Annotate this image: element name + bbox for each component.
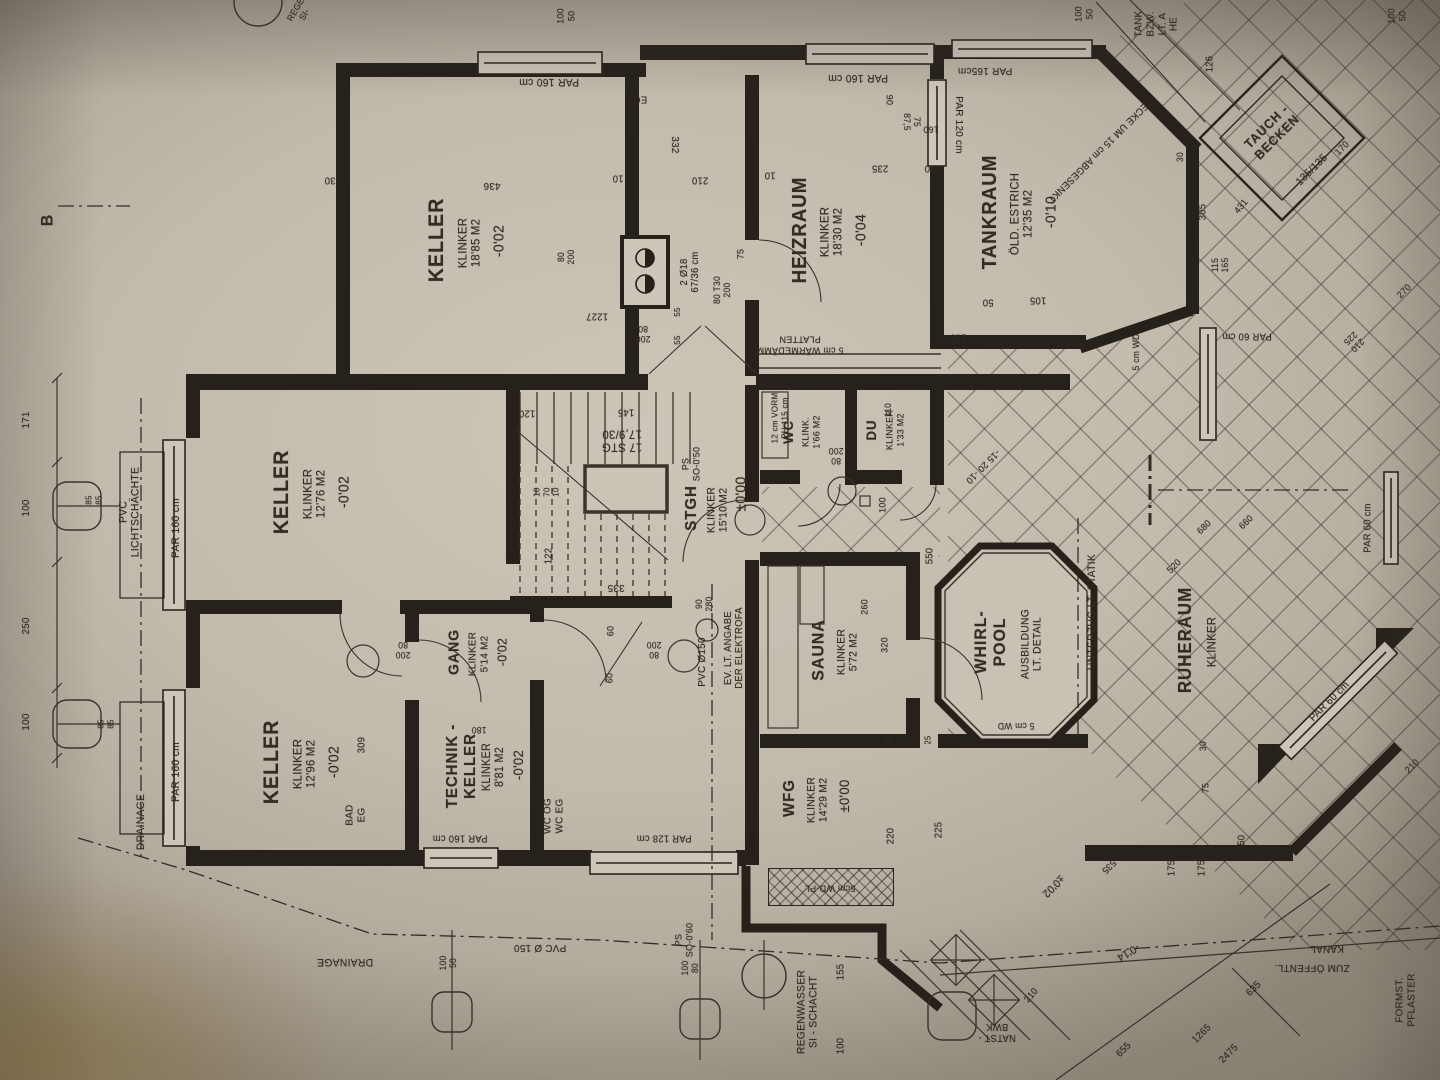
label-formst-: FORMST. PFLASTER	[1394, 973, 1418, 1026]
label-keller: KELLER	[270, 450, 294, 535]
label-pvc-150: PVC Ø150	[697, 637, 709, 686]
label-130: 130	[950, 331, 967, 342]
label-145: 145	[618, 406, 635, 417]
label-par-160-cm: PAR 160 cm	[828, 72, 888, 84]
label-2-18: 2 Ø18 67/36 cm	[679, 252, 701, 293]
label-80: 80 200	[829, 446, 844, 466]
label-par-160-cm: PAR 160 cm	[170, 742, 182, 802]
label-par-60-cm: PAR 60 cm	[1308, 680, 1353, 725]
label-110: 110	[883, 403, 893, 417]
label-50: 50	[982, 296, 993, 307]
label-5-cm-wärmedämm: 5 cm WÄRMEDÄMM PLATTEN	[756, 333, 843, 354]
label-tank: TANK BZW. LT. A HE	[1134, 11, 1181, 38]
label-100: 100	[21, 713, 33, 730]
label-30: 30	[1198, 741, 1208, 751]
label-öld-estrich: ÖLD. ESTRICH 12'35 M2	[1009, 173, 1036, 255]
label-175: 175	[1166, 860, 1177, 877]
label-225: 225	[933, 822, 944, 839]
label-635: 635	[1244, 979, 1264, 999]
label-210: 210 225	[1342, 330, 1367, 355]
label-30: 30	[324, 174, 335, 185]
label-250: 250	[21, 617, 33, 634]
label-10: 10	[764, 169, 775, 180]
label-par-60-cm: PAR 60 cm	[1222, 330, 1271, 341]
label-332: 332	[668, 136, 680, 153]
label-126: 126	[1204, 56, 1215, 73]
label-par-165cm: PAR 165cm	[958, 64, 1012, 76]
label-520: 520	[1166, 558, 1185, 577]
label-par-160-cm: PAR 160 cm	[433, 832, 488, 843]
label-drainage: DRAINAGE	[135, 794, 147, 850]
label-rege: REGE SI-	[285, 0, 315, 28]
label-1265: 1265	[1190, 1022, 1213, 1045]
label-bad: BAD EG	[344, 804, 368, 825]
label-115: 115 165	[1210, 258, 1230, 273]
label-90: 90	[883, 95, 894, 106]
label-122: 122	[543, 548, 554, 565]
label-2475: 2475	[1217, 1042, 1240, 1065]
label-tauch-: TAUCH - BECKEN	[1241, 101, 1302, 162]
label-55: 55	[673, 307, 683, 316]
label-heizraum: HEIZRAUM	[789, 177, 811, 284]
label-100: 100	[835, 1038, 846, 1055]
label--0'14: -0'14	[1114, 941, 1141, 964]
label-75: 75	[737, 249, 748, 260]
label-b: B	[37, 214, 56, 226]
label-260: 260	[861, 599, 872, 615]
label-klinker: KLINKER 8'81 M2	[481, 743, 507, 791]
label-ps: PS SO-0'60	[674, 923, 695, 957]
label-klinker: KLINKER	[1205, 617, 1218, 667]
label--0'02: -0'02	[337, 476, 354, 508]
label-309: 309	[356, 737, 367, 754]
label-320: 320	[881, 637, 892, 653]
label-ps: PS SO-0'50	[681, 447, 702, 481]
label-12-cm-vorm: 12 cm VORM PH 115 cm	[770, 393, 789, 444]
label-natst-: NATST - BWK	[978, 1021, 1016, 1043]
label-105: 105	[1030, 294, 1047, 305]
label-660: 660	[1238, 514, 1257, 533]
label-270: 270	[1396, 283, 1415, 302]
label-regenwasser: REGENWASSER SI - SCHACHT	[796, 970, 821, 1054]
label-klinker: KLINKER 15'10 M2	[706, 487, 731, 533]
label-335: 335	[607, 581, 624, 593]
label-171: 171	[21, 411, 33, 428]
label--0'02: -0'02	[496, 638, 511, 666]
label-200: 200 80	[396, 640, 411, 660]
label-kanal: KANAL	[1310, 942, 1344, 954]
label-75: 75 87,5	[902, 113, 922, 131]
label-120: 120	[519, 407, 536, 418]
label-80: 80 200	[647, 640, 662, 660]
label-100: 100	[879, 497, 890, 513]
label-ruheraum: RUHERAUM	[1175, 587, 1195, 693]
label-60: 60	[607, 626, 618, 637]
label-par-160-cm: PAR 160 cm	[519, 76, 579, 88]
label-17-stg: 17 STG 17,9/30	[602, 427, 643, 454]
label-10: 10	[612, 172, 623, 183]
label-100: 100 50	[1387, 8, 1408, 24]
label-klinker: KLINKER 12'96 M2	[292, 739, 319, 789]
label-85: 85 85	[84, 495, 103, 504]
label-par-128-cm: PAR 128 cm	[637, 832, 692, 843]
label-wfg: WFG	[781, 779, 799, 817]
label-klinker: KLINKER 5'14 M2	[467, 632, 491, 676]
label-zum-öffentl-: ZUM ÖFFENTL.	[1274, 961, 1349, 973]
label-unterzug-lt-statik: UNTERZUG LT. STATIK	[1086, 554, 1098, 670]
label-100: 100 80	[680, 961, 700, 976]
label-drainage: DRAINAGE	[317, 956, 373, 968]
label-du: DU	[864, 420, 880, 441]
label--15-20-10: -15 20 -10	[963, 447, 1001, 485]
label-85: 85 85	[96, 719, 115, 728]
label--0'04: -0'04	[854, 214, 871, 246]
label--0'02: -0'02	[492, 225, 509, 257]
label-55: 55	[673, 335, 683, 344]
label-klinker: KLINKER 5'72 M2	[836, 629, 861, 675]
label-klinker: KLINKER 18'30 M2	[819, 207, 846, 257]
label-155: 155	[835, 964, 846, 981]
text-labels: KELLERKLINKER 18'85 M2-0'02HEIZRAUMKLINK…	[0, 0, 1440, 1080]
label-180: 180	[472, 725, 487, 735]
label-sauna: SAUNA	[808, 619, 827, 681]
label-431: 431	[1233, 198, 1251, 217]
label-220: 220	[885, 828, 896, 845]
label-305: 305	[1197, 204, 1208, 221]
label--0'02: -0'02	[511, 750, 527, 780]
label-10: 10 70 10	[533, 487, 562, 496]
label-decke-um-15-cm-abgesenkt: DECKE UM 15 cm ABGESENKT	[1045, 95, 1155, 205]
label-30: 30	[924, 162, 935, 173]
label-210: 210	[1023, 987, 1041, 1006]
label-80: 80 200	[556, 250, 576, 265]
label-100: 100	[21, 499, 33, 516]
label-par-120-cm: PAR 120 cm	[952, 96, 964, 154]
label-90: 90 280	[694, 597, 714, 612]
label--0'00: ±0'00	[837, 779, 853, 812]
label-175: 175	[1196, 860, 1207, 877]
label-250: 250	[1236, 835, 1247, 852]
label-klinker: KLINKER 18'85 M2	[457, 218, 484, 268]
label-680: 680	[1196, 519, 1215, 538]
label-technik-: TECHNIK - KELLER	[444, 724, 480, 808]
label-100: 100 50	[556, 8, 577, 24]
label-550: 550	[924, 548, 935, 565]
label-160: 160	[923, 123, 939, 134]
label-100: 100 50	[1074, 6, 1095, 22]
floor-plan-photo: KELLERKLINKER 18'85 M2-0'02HEIZRAUMKLINK…	[0, 0, 1440, 1080]
label-100: 100 50	[438, 956, 458, 971]
label-60: 60	[606, 673, 617, 684]
label-80-t30: 80 T30 200	[712, 276, 732, 304]
label-5cm-wd-pl: 5cm WD-PL	[805, 882, 856, 893]
label-stgh: STGH	[683, 485, 701, 531]
label--0'02: ±0'02	[1039, 872, 1066, 899]
label-436: 436	[483, 179, 500, 191]
label-eg: EG	[633, 93, 647, 104]
label-tankraum: TANKRAUM	[979, 155, 1001, 270]
label-keller: KELLER	[260, 720, 284, 805]
label-wc-og: WC OG WC EG	[542, 798, 566, 834]
label-5-cm-wd: 5 cm WD	[998, 721, 1035, 731]
label-klinker: KLINKER 14'29 M2	[806, 777, 831, 823]
label-gang: GANG	[447, 629, 464, 675]
label-135-135: 135/135	[1294, 152, 1331, 189]
label-par-160-cm: PAR 160 cm	[170, 498, 182, 558]
label-klinker: KLINKER 12'76 M2	[302, 469, 329, 519]
label-235: 235	[872, 162, 889, 173]
label-whirl-: WHIRL- POOL	[971, 610, 1009, 673]
label-1227: 1227	[586, 310, 608, 321]
label-25: 25	[925, 736, 934, 745]
label-25: 25	[885, 736, 894, 745]
label-210: 210	[1404, 758, 1423, 777]
label-pvc-150: PVC Ø 150	[514, 941, 566, 953]
label-par-60-cm: PAR 60 cm	[1362, 503, 1373, 552]
label-655: 655	[1114, 1040, 1134, 1060]
label-klink-: KLINK. 1'66 M2	[801, 415, 822, 448]
label-200: 200 80	[636, 324, 651, 344]
label-170: 170	[1334, 140, 1353, 159]
label--0'00: ±0'00	[734, 476, 751, 511]
label-75: 75	[1202, 783, 1213, 794]
label-ausbildung: AUSBILDUNG LT. DETAIL	[1020, 609, 1045, 679]
label-5-cm-wd: 5 cm WD	[1131, 334, 1141, 371]
label-30: 30	[1175, 152, 1185, 162]
label-pvc: PVC LICHTSCHÄCHTE	[118, 467, 143, 557]
label-210: 210	[692, 174, 709, 185]
label-ev-lt-angabe: EV. LT. ANGABE DER ELEKTROFA	[723, 607, 745, 689]
label-535: 535	[1099, 857, 1118, 876]
label-keller: KELLER	[425, 198, 449, 283]
label--0'02: -0'02	[327, 746, 344, 778]
